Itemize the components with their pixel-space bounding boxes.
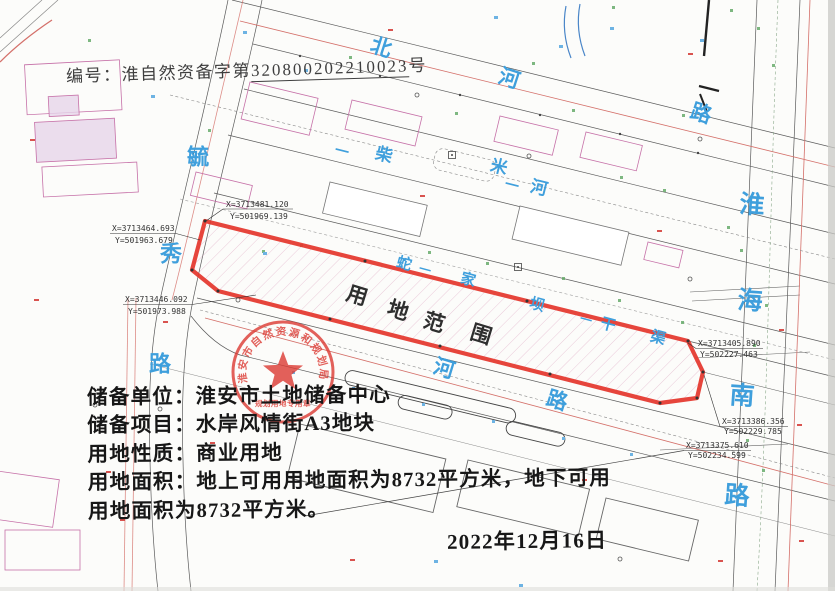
land-area-line-2: 用地面积为8732平方米。 <box>88 493 611 526</box>
coordinate-x-value: X=3713375.610 <box>686 441 749 450</box>
coordinate-y-value: Y=501969.139 <box>230 212 288 221</box>
west-road-label-char: 路 <box>149 352 172 377</box>
document-number-label: 编号： <box>66 65 122 86</box>
coordinate-x-value: X=3713386.356 <box>722 417 785 426</box>
reserve-project-line: 储备项目：水岸风情街A3地块 <box>87 408 610 441</box>
scan-edge-shadow <box>0 587 835 591</box>
coordinate-x-value: X=3713405.890 <box>698 339 761 348</box>
coordinate-y-value: Y=501973.988 <box>128 307 186 316</box>
west-road-label-char: 毓 <box>187 145 209 170</box>
scan-edge-shadow <box>828 0 835 591</box>
coordinate-x-value: X=3713446.092 <box>125 295 188 304</box>
document-number-suffix: 号 <box>408 56 427 76</box>
scanned-land-reserve-map-document: X=3713481.120 Y=501969.139 X=3713464.693… <box>0 0 835 591</box>
document-date: 2022年12月16日 <box>447 524 608 556</box>
west-road-label-char: 秀 <box>159 242 182 267</box>
coordinate-y-value: Y=502227.463 <box>700 350 758 359</box>
parcel-details: 储备单位：淮安市土地储备中心 储备项目：水岸风情街A3地块 用地性质：商业用地 … <box>87 379 611 526</box>
east-road-label-char: 海 <box>737 285 764 316</box>
east-road-label-char: 南 <box>729 381 756 411</box>
land-use-type-line: 用地性质：商业用地 <box>87 436 610 469</box>
reserve-unit-line: 储备单位：淮安市土地储备中心 <box>87 379 610 412</box>
coordinate-x-value: X=3713464.693 <box>112 224 175 233</box>
east-road-label-char: 路 <box>724 481 752 511</box>
land-area-line-1: 用地面积：地上可用用地面积为8732平方米，地下可用 <box>88 465 611 498</box>
coordinate-y-value: Y=502229.785 <box>724 427 782 436</box>
coordinate-x-value: X=3713481.120 <box>226 200 289 209</box>
coordinate-y-value: Y=502234.599 <box>688 451 746 460</box>
document-number-prefix: 淮自然资备字第 <box>121 61 251 84</box>
east-road-label-char: 淮 <box>739 190 766 220</box>
